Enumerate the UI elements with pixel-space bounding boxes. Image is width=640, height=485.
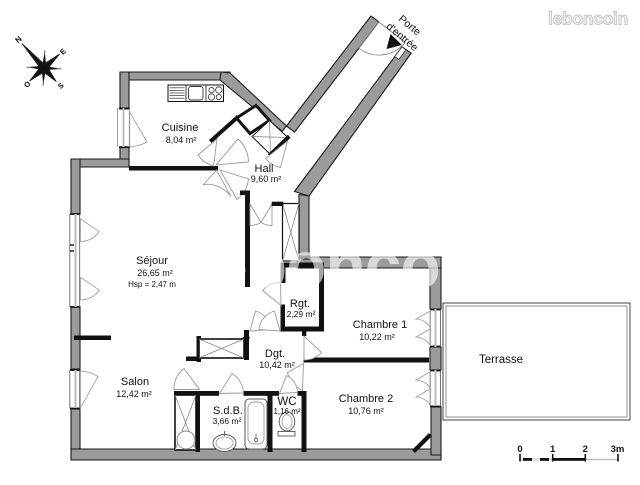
svg-text:1: 1 [550,444,556,455]
svg-text:Séjour: Séjour [136,255,168,267]
svg-text:10,76 m²: 10,76 m² [348,406,384,416]
svg-text:12,42 m²: 12,42 m² [116,389,152,399]
svg-text:3m: 3m [611,444,625,455]
svg-text:1,16 m²: 1,16 m² [273,407,300,416]
svg-text:Chambre 2: Chambre 2 [339,393,393,405]
svg-text:Dgt.: Dgt. [265,348,285,360]
svg-text:10,22 m²: 10,22 m² [359,332,395,342]
svg-text:0: 0 [517,444,522,455]
svg-text:Chambre 1: Chambre 1 [353,319,407,331]
svg-text:2: 2 [583,444,588,455]
svg-text:Salon: Salon [121,376,149,388]
svg-text:Cuisine: Cuisine [162,122,199,134]
svg-text:leboncoin: leboncoin [194,228,497,302]
svg-text:3,66 m²: 3,66 m² [213,416,242,426]
svg-text:leboncoin: leboncoin [548,9,628,29]
svg-text:2,29 m²: 2,29 m² [287,309,316,319]
svg-text:Terrasse: Terrasse [479,354,523,366]
svg-text:Hsp = 2,47 m: Hsp = 2,47 m [128,280,176,289]
svg-text:8,04 m²: 8,04 m² [166,135,197,145]
svg-text:9,60 m²: 9,60 m² [251,174,282,184]
svg-text:10,42 m²: 10,42 m² [259,360,295,370]
svg-text:26,65 m²: 26,65 m² [137,268,173,278]
